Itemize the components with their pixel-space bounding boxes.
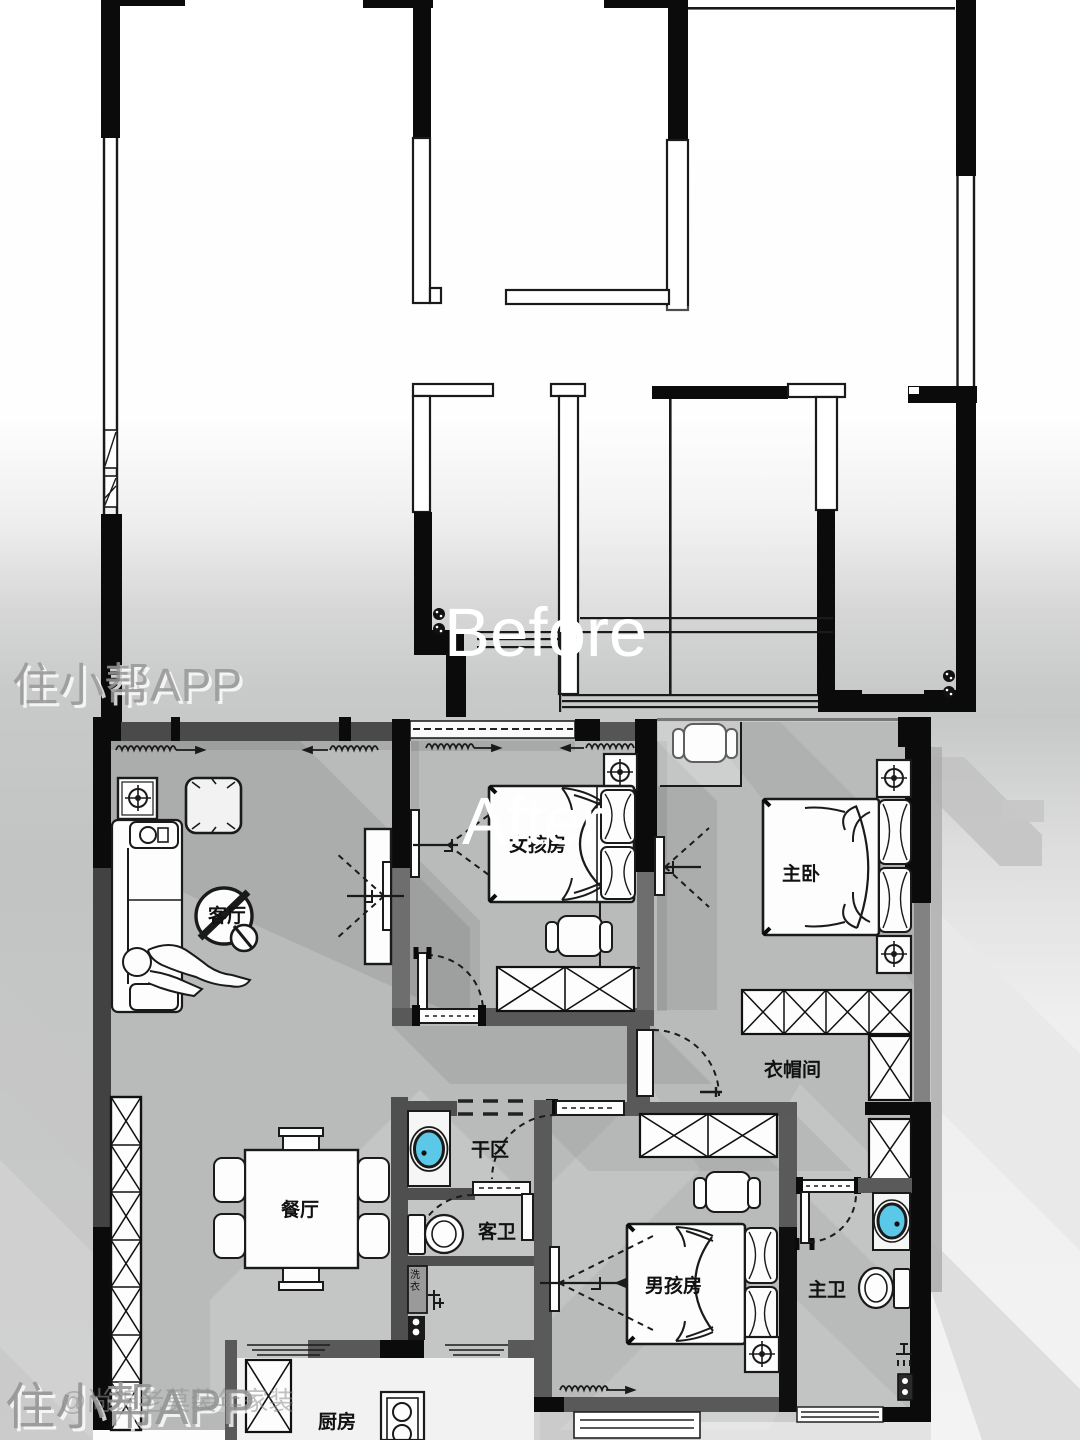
svg-text:Before: Before (444, 594, 647, 671)
svg-text:主卫: 主卫 (808, 1279, 846, 1301)
svg-text:厨房: 厨房 (318, 1410, 356, 1433)
svg-text:干区: 干区 (471, 1140, 509, 1161)
svg-text:衣: 衣 (410, 1280, 420, 1293)
svg-text:After: After (462, 784, 604, 859)
svg-text:客厅: 客厅 (208, 904, 246, 927)
svg-text:餐厅: 餐厅 (281, 1198, 319, 1221)
svg-text:住小帮APP: 住小帮APP (12, 659, 242, 711)
svg-text:客卫: 客卫 (478, 1220, 516, 1243)
svg-text:男孩房: 男孩房 (645, 1274, 702, 1297)
svg-text:洗: 洗 (410, 1269, 420, 1281)
svg-text:主卧: 主卧 (782, 863, 820, 885)
svg-text:衣帽间: 衣帽间 (764, 1058, 821, 1081)
svg-text:@尚锦老莫装年家装: @尚锦老莫装年家装 (60, 1386, 294, 1416)
